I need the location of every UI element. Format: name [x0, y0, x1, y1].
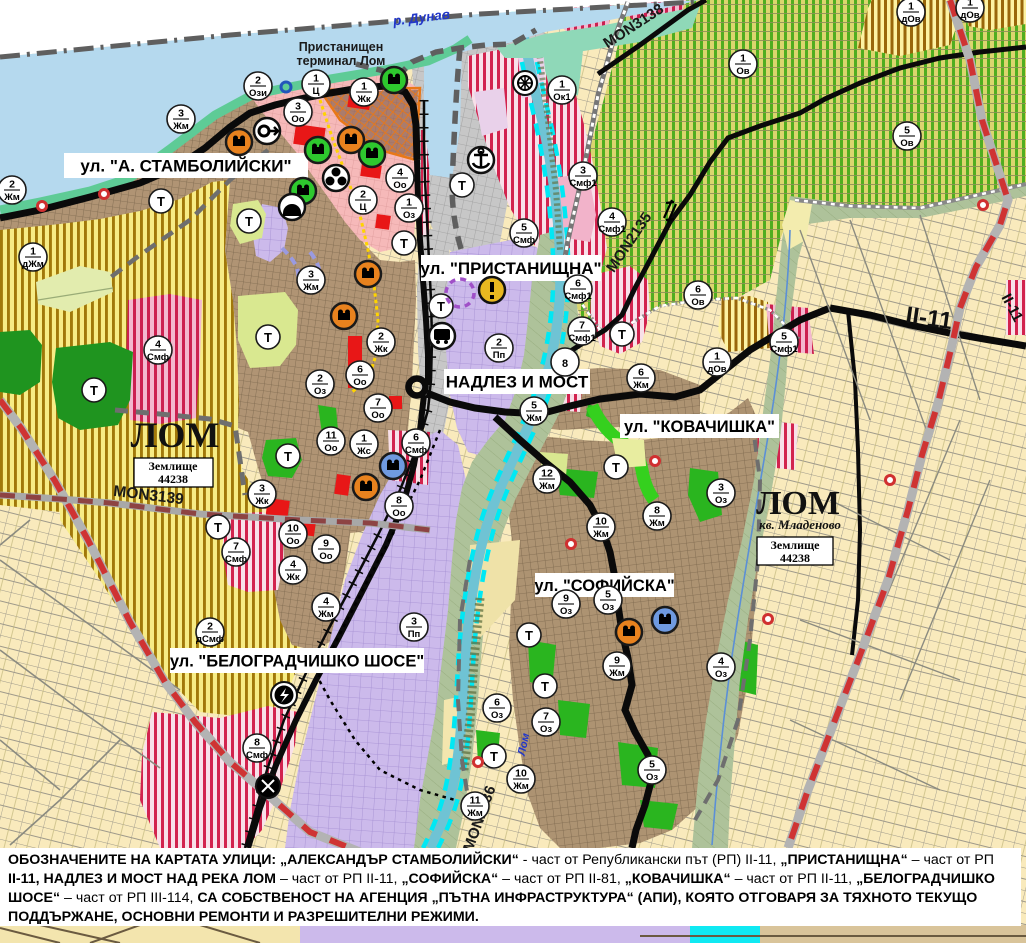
- svg-text:3: 3: [718, 482, 724, 494]
- svg-text:Жм: Жм: [592, 529, 609, 540]
- svg-text:Оо: Оо: [393, 180, 406, 191]
- svg-text:1: 1: [740, 53, 746, 65]
- svg-text:44238: 44238: [158, 472, 188, 486]
- svg-text:Смф1: Смф1: [598, 224, 626, 235]
- svg-text:4: 4: [155, 339, 161, 351]
- svg-text:9: 9: [614, 655, 620, 667]
- svg-text:Оо: Оо: [371, 410, 384, 421]
- svg-text:Жм: Жм: [608, 668, 625, 679]
- svg-text:11: 11: [469, 795, 480, 807]
- svg-text:6: 6: [695, 284, 701, 296]
- svg-text:Т: Т: [458, 178, 466, 193]
- svg-text:дОв: дОв: [707, 364, 726, 375]
- svg-text:Т: Т: [541, 679, 549, 694]
- svg-text:Оз: Оз: [715, 669, 727, 680]
- svg-text:Т: Т: [437, 299, 445, 314]
- svg-text:8: 8: [254, 737, 260, 749]
- svg-text:Оо: Оо: [286, 536, 299, 547]
- svg-text:Смф: Смф: [147, 352, 169, 363]
- svg-text:Жм: Жм: [172, 121, 189, 132]
- svg-text:1: 1: [406, 197, 412, 209]
- svg-text:ОБОЗНАЧЕНИТЕ НА КАРТАТА УЛИЦИ:: ОБОЗНАЧЕНИТЕ НА КАРТАТА УЛИЦИ: „АЛЕКСАНД…: [8, 850, 994, 868]
- svg-text:ШОСЕ“ – част от РП III-114, СА: ШОСЕ“ – част от РП III-114, СА СОБСТВЕНО…: [8, 890, 977, 906]
- svg-text:Т: Т: [90, 383, 98, 398]
- svg-text:Оз: Оз: [540, 724, 552, 735]
- svg-text:Смф1: Смф1: [568, 333, 596, 344]
- svg-text:Т: Т: [490, 749, 498, 764]
- svg-text:Жм: Жм: [538, 481, 555, 492]
- svg-text:3: 3: [295, 101, 301, 113]
- svg-text:7: 7: [579, 320, 585, 332]
- svg-text:6: 6: [494, 697, 500, 709]
- svg-text:44238: 44238: [780, 551, 810, 565]
- svg-text:Жм: Жм: [512, 781, 529, 792]
- svg-text:Оо: Оо: [291, 114, 304, 125]
- svg-text:Смф1: Смф1: [569, 178, 597, 189]
- svg-text:Жк: Жк: [356, 94, 371, 105]
- svg-text:10: 10: [287, 523, 299, 535]
- svg-text:Т: Т: [284, 449, 292, 464]
- svg-text:Ц: Ц: [360, 202, 367, 213]
- svg-text:Оз: Оз: [491, 710, 503, 721]
- svg-text:6: 6: [357, 364, 363, 376]
- svg-text:1: 1: [361, 433, 367, 445]
- svg-text:Смф: Смф: [405, 445, 427, 456]
- svg-text:7: 7: [233, 541, 239, 553]
- svg-text:9: 9: [563, 593, 569, 605]
- svg-text:дСмф: дСмф: [196, 634, 224, 645]
- svg-text:Жк: Жк: [373, 344, 388, 355]
- svg-text:Ов: Ов: [691, 297, 704, 308]
- svg-text:Жм: Жм: [525, 413, 542, 424]
- svg-text:дЖм: дЖм: [22, 259, 44, 270]
- svg-text:Т: Т: [400, 236, 408, 251]
- svg-text:2: 2: [496, 337, 502, 349]
- svg-text:Ц: Ц: [313, 86, 320, 97]
- svg-text:Т: Т: [157, 194, 165, 209]
- svg-text:Смф: Смф: [246, 750, 268, 761]
- svg-text:6: 6: [413, 432, 419, 444]
- svg-text:Пристанищен: Пристанищен: [299, 40, 384, 54]
- svg-text:5: 5: [781, 331, 787, 343]
- svg-text:4: 4: [290, 559, 296, 571]
- svg-text:Пп: Пп: [408, 629, 421, 640]
- svg-text:4: 4: [323, 596, 329, 608]
- svg-text:Жм: Жм: [302, 282, 319, 293]
- svg-text:Смф: Смф: [513, 235, 535, 246]
- svg-text:дОв: дОв: [960, 10, 979, 21]
- svg-text:II-11, НАДЛЕЗ И МОСТ НАД РЕКА: II-11, НАДЛЕЗ И МОСТ НАД РЕКА ЛОМ – част…: [8, 869, 995, 887]
- svg-text:Оз: Оз: [715, 495, 727, 506]
- svg-text:Землище: Землище: [771, 538, 821, 552]
- svg-text:ЛОМ: ЛОМ: [131, 415, 220, 455]
- svg-text:Ок1: Ок1: [553, 92, 571, 103]
- svg-text:8: 8: [396, 495, 402, 507]
- svg-text:Жм: Жм: [3, 192, 20, 203]
- svg-text:Жм: Жм: [648, 518, 665, 529]
- svg-text:Т: Т: [612, 460, 620, 475]
- svg-text:6: 6: [575, 278, 581, 290]
- svg-text:Оо: Оо: [319, 551, 332, 562]
- svg-text:Оз: Оз: [560, 606, 572, 617]
- svg-text:Жк: Жк: [285, 572, 300, 583]
- svg-text:ПОДДЪРЖАНЕ, ОСНОВНИ РЕМОНТИ И: ПОДДЪРЖАНЕ, ОСНОВНИ РЕМОНТИ И РАЗРЕШИТЕЛ…: [8, 909, 479, 925]
- svg-text:Оо: Оо: [324, 443, 337, 454]
- svg-text:Оз: Оз: [602, 602, 614, 613]
- svg-text:1: 1: [908, 1, 914, 13]
- svg-text:8: 8: [562, 358, 568, 370]
- svg-text:12: 12: [541, 468, 553, 480]
- svg-text:2: 2: [360, 189, 366, 201]
- svg-text:Смф1: Смф1: [564, 291, 592, 302]
- svg-text:Жс: Жс: [356, 446, 371, 457]
- svg-text:2: 2: [255, 75, 261, 87]
- svg-text:5: 5: [605, 589, 611, 601]
- svg-text:2: 2: [378, 331, 384, 343]
- svg-text:11: 11: [325, 430, 336, 442]
- svg-text:Оо: Оо: [392, 508, 405, 519]
- svg-text:10: 10: [515, 768, 527, 780]
- svg-text:8: 8: [654, 505, 660, 517]
- svg-text:6: 6: [638, 367, 644, 379]
- svg-text:3: 3: [308, 269, 314, 281]
- svg-text:Оз: Оз: [314, 386, 326, 397]
- svg-text:7: 7: [375, 397, 381, 409]
- svg-text:1: 1: [714, 351, 720, 363]
- svg-text:Смф: Смф: [225, 554, 247, 565]
- svg-text:Землище: Землище: [149, 459, 199, 473]
- svg-text:Т: Т: [214, 520, 222, 535]
- svg-text:1: 1: [967, 0, 973, 9]
- svg-text:7: 7: [543, 711, 549, 723]
- svg-text:1: 1: [30, 246, 36, 258]
- svg-text:Жм: Жм: [466, 808, 483, 819]
- svg-text:3: 3: [411, 616, 417, 628]
- svg-text:5: 5: [531, 400, 537, 412]
- svg-text:Т: Т: [525, 628, 533, 643]
- svg-text:ул. "БЕЛОГРАДЧИШКО ШОСЕ": ул. "БЕЛОГРАДЧИШКО ШОСЕ": [170, 652, 424, 670]
- svg-text:Т: Т: [264, 330, 272, 345]
- svg-text:1: 1: [361, 81, 367, 93]
- svg-text:Ов: Ов: [900, 138, 913, 149]
- svg-text:4: 4: [397, 167, 403, 179]
- svg-text:Ов: Ов: [736, 66, 749, 77]
- svg-text:5: 5: [521, 222, 527, 234]
- svg-text:9: 9: [323, 538, 329, 550]
- svg-text:Т: Т: [618, 327, 626, 342]
- svg-text:Оз: Оз: [403, 210, 415, 221]
- svg-text:Оз: Оз: [646, 772, 658, 783]
- svg-text:терминал Лом: терминал Лом: [297, 54, 386, 68]
- svg-text:2: 2: [9, 179, 15, 191]
- svg-text:5: 5: [904, 125, 910, 137]
- svg-text:3: 3: [178, 108, 184, 120]
- svg-text:ул. "КОВАЧИШКА": ул. "КОВАЧИШКА": [624, 418, 775, 436]
- svg-text:Жм: Жм: [632, 380, 649, 391]
- svg-text:2: 2: [317, 373, 323, 385]
- svg-text:Пп: Пп: [493, 350, 506, 361]
- svg-text:ул. "А. СТАМБОЛИЙСКИ": ул. "А. СТАМБОЛИЙСКИ": [80, 157, 291, 176]
- svg-text:2: 2: [207, 621, 213, 633]
- svg-text:кв. Младеново: кв. Младеново: [759, 517, 841, 532]
- svg-text:дОв: дОв: [901, 14, 920, 25]
- svg-text:Жм: Жм: [317, 609, 334, 620]
- svg-text:10: 10: [595, 516, 607, 528]
- svg-text:Ози: Ози: [249, 88, 267, 99]
- svg-text:Смф1: Смф1: [770, 344, 798, 355]
- svg-text:5: 5: [649, 759, 655, 771]
- svg-text:4: 4: [609, 211, 615, 223]
- svg-text:1: 1: [559, 79, 565, 91]
- svg-text:Жк: Жк: [254, 496, 269, 507]
- svg-text:3: 3: [259, 483, 265, 495]
- svg-text:4: 4: [718, 656, 724, 668]
- svg-text:1: 1: [313, 73, 319, 85]
- svg-text:Т: Т: [245, 214, 253, 229]
- svg-text:Оо: Оо: [353, 377, 366, 388]
- svg-text:3: 3: [580, 165, 586, 177]
